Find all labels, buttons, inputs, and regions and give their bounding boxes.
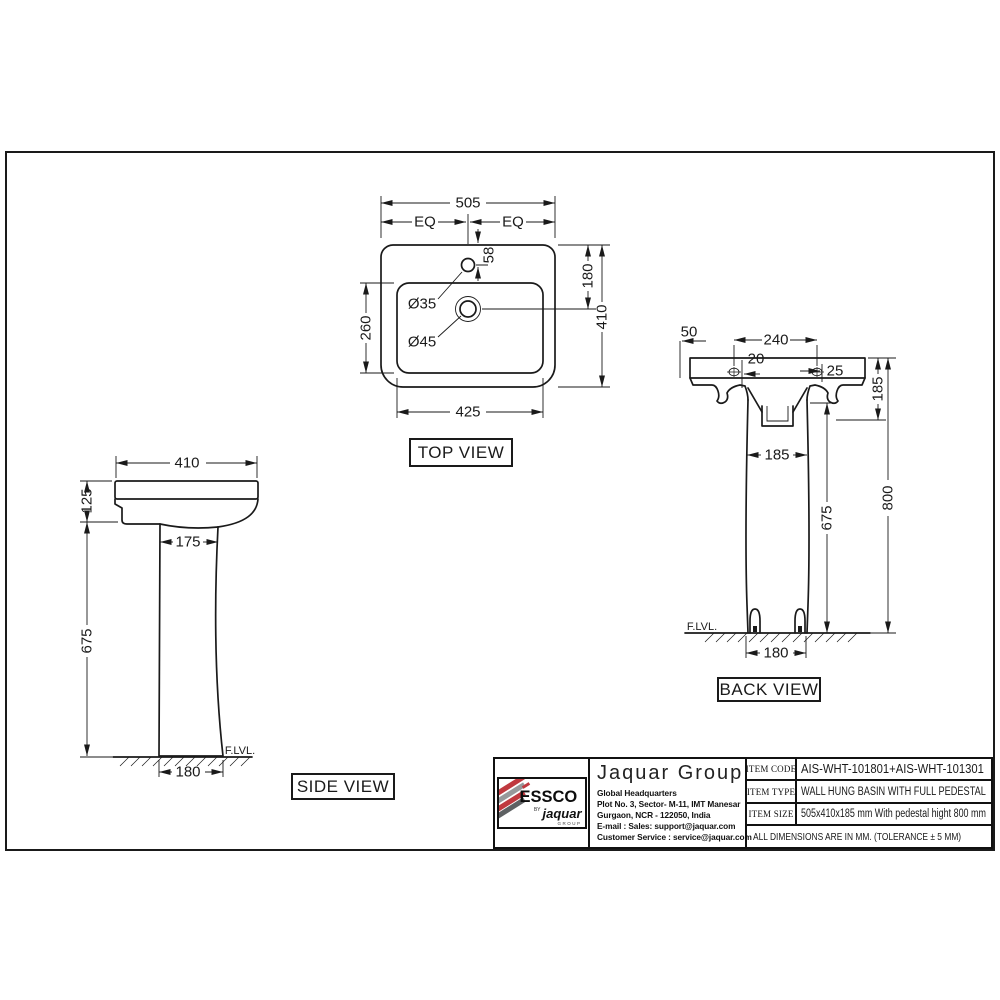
back-view-outline bbox=[685, 358, 870, 642]
address-line: E-mail : Sales: support@jaquar.com bbox=[597, 821, 745, 832]
floor-level-label-side: F.LVL. bbox=[225, 745, 255, 757]
dim-dia35: Ø35 bbox=[408, 296, 436, 313]
dim-dia45: Ø45 bbox=[408, 334, 436, 351]
dim-505: 505 bbox=[455, 195, 480, 212]
side-view-dimensions: 410 125 675 175 180 F.LVL. bbox=[79, 455, 258, 781]
item-size-label: ITEM SIZE bbox=[747, 804, 797, 824]
address-line: Plot No. 3, Sector- M-11, IMT Manesar bbox=[597, 799, 745, 810]
top-view-label: TOP VIEW bbox=[409, 438, 513, 467]
essco-logo: ESSCO BYjaquar GROUP bbox=[497, 777, 587, 829]
item-size-value: 505x410x185 mm With pedestal hight 800 m… bbox=[795, 804, 993, 824]
dim-240: 240 bbox=[763, 332, 788, 349]
top-view-label-text: TOP VIEW bbox=[418, 443, 505, 463]
item-type-text: WALL HUNG BASIN WITH FULL PEDESTAL bbox=[801, 786, 986, 798]
group-text: GROUP bbox=[534, 822, 582, 827]
top-view-outline bbox=[381, 245, 555, 387]
overflow-funnel bbox=[748, 388, 807, 412]
by-jaquar-mark: BYjaquar GROUP bbox=[534, 806, 582, 827]
address-line: Gurgaon, NCR - 122050, India bbox=[597, 810, 745, 821]
dim-180-back: 180 bbox=[763, 645, 788, 662]
essco-wordmark: ESSCO bbox=[520, 788, 578, 807]
dim-eq-left: EQ bbox=[414, 214, 436, 231]
item-size-text: 505x410x185 mm With pedestal hight 800 m… bbox=[801, 808, 986, 820]
dim-410-side: 410 bbox=[174, 455, 199, 472]
drawing-sheet: 505 EQ EQ 58 180 410 260 425 Ø35 Ø45 TOP… bbox=[0, 0, 1000, 1000]
side-view-outline bbox=[113, 481, 258, 766]
tap-hole bbox=[462, 259, 475, 272]
mounting-hole-left bbox=[727, 367, 741, 377]
pedestal-feet bbox=[750, 609, 805, 633]
leader-tap bbox=[438, 272, 462, 299]
dim-eq-right: EQ bbox=[502, 214, 524, 231]
back-view-dimensions: 50 240 20 25 185 185 675 800 180 F.LVL. bbox=[680, 324, 897, 662]
dim-20: 20 bbox=[748, 351, 765, 368]
dim-800: 800 bbox=[880, 485, 897, 510]
leader-drain bbox=[438, 316, 461, 337]
address-line: Customer Service : service@jaquar.com bbox=[597, 832, 745, 843]
company-cell: Jaquar Group Global Headquarters Plot No… bbox=[590, 759, 747, 847]
side-view-label-text: SIDE VIEW bbox=[297, 777, 389, 797]
item-type-row: ITEM TYPE WALL HUNG BASIN WITH FULL PEDE… bbox=[747, 781, 993, 804]
item-size-row: ITEM SIZE 505x410x185 mm With pedestal h… bbox=[747, 804, 993, 826]
side-view-label: SIDE VIEW bbox=[291, 773, 395, 800]
dim-675-back: 675 bbox=[819, 505, 836, 530]
item-type-value: WALL HUNG BASIN WITH FULL PEDESTAL bbox=[795, 781, 993, 802]
company-name: Jaquar Group bbox=[597, 762, 745, 785]
dim-180-top: 180 bbox=[580, 263, 597, 288]
dim-185-width: 185 bbox=[764, 447, 789, 464]
dim-58: 58 bbox=[481, 247, 498, 264]
jaquar-script: jaquar bbox=[542, 806, 581, 821]
item-code-text: AIS-WHT-101801+AIS-WHT-101301 bbox=[801, 762, 984, 776]
tolerance-note-text: ALL DIMENSIONS ARE IN MM. (TOLERANCE ± 5… bbox=[753, 831, 961, 843]
item-code-row: ITEM CODE AIS-WHT-101801+AIS-WHT-101301 bbox=[747, 759, 993, 781]
title-block: ESSCO BYjaquar GROUP Jaquar Group Global… bbox=[493, 757, 993, 849]
back-view-drawing: 50 240 20 25 185 185 675 800 180 F.LVL. bbox=[650, 320, 900, 680]
item-code-label: ITEM CODE bbox=[747, 759, 797, 779]
back-view-label: BACK VIEW bbox=[717, 677, 821, 702]
dim-425: 425 bbox=[455, 404, 480, 421]
tolerance-note: ALL DIMENSIONS ARE IN MM. (TOLERANCE ± 5… bbox=[747, 826, 993, 847]
back-ground-hatch bbox=[705, 633, 857, 642]
by-text: BY bbox=[534, 807, 541, 813]
address-line: Global Headquarters bbox=[597, 788, 745, 799]
top-view-drawing: 505 EQ EQ 58 180 410 260 425 Ø35 Ø45 bbox=[330, 180, 630, 445]
dim-260: 260 bbox=[358, 315, 375, 340]
dim-50: 50 bbox=[681, 324, 698, 341]
dim-675-side: 675 bbox=[79, 628, 96, 653]
logo-cell: ESSCO BYjaquar GROUP bbox=[495, 759, 590, 847]
item-code-value: AIS-WHT-101801+AIS-WHT-101301 bbox=[795, 759, 993, 779]
dim-125: 125 bbox=[79, 488, 96, 513]
dim-185-height: 185 bbox=[870, 376, 887, 401]
dim-175: 175 bbox=[175, 534, 200, 551]
dim-25: 25 bbox=[827, 363, 844, 380]
side-view-drawing: 410 125 675 175 180 F.LVL. bbox=[60, 445, 340, 790]
dim-410-top: 410 bbox=[594, 304, 611, 329]
floor-level-label-back: F.LVL. bbox=[687, 621, 717, 633]
dim-180-side: 180 bbox=[175, 764, 200, 781]
back-view-label-text: BACK VIEW bbox=[720, 680, 819, 700]
item-type-label: ITEM TYPE bbox=[747, 781, 797, 802]
drain-hole bbox=[460, 301, 476, 317]
